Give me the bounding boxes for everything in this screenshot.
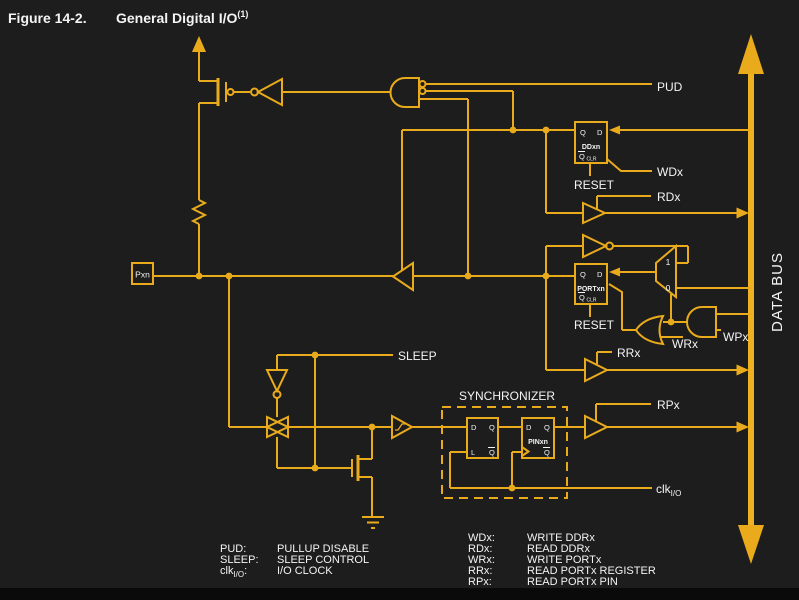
pmos-gate-bubble: [228, 89, 234, 95]
portxn-qbar-label: Q: [579, 293, 585, 302]
reset-ddr-label: RESET: [574, 178, 615, 192]
reset-port-label: RESET: [574, 318, 615, 332]
latch-q-label: Q: [489, 423, 495, 432]
clamp-gate-right-triangle: [267, 417, 288, 437]
portxn-name: PORTxn: [577, 286, 605, 293]
clk-base: clk: [656, 482, 672, 496]
rdx-bus-arrow-icon: [737, 208, 750, 219]
ground-symbol: [362, 517, 384, 528]
clamp-gate-left-triangle: [267, 417, 288, 437]
wires-portxn: [153, 246, 751, 370]
figure-number: Figure 14-2.: [8, 10, 87, 26]
wires-input-path: [229, 276, 467, 528]
data-bus: DATA BUS: [738, 34, 786, 564]
wdx-label: WDx: [657, 165, 683, 179]
wires-ddxn: [402, 130, 751, 270]
data-bus-label: DATA BUS: [769, 252, 786, 332]
latch-d-label: D: [471, 423, 477, 432]
pullup-and-gate: [391, 78, 420, 107]
wrx-label: WRx: [672, 337, 698, 351]
synchronizer-label: SYNCHRONIZER: [459, 389, 555, 403]
ddxn-qbar-label: Q: [579, 152, 585, 161]
mux-input-1-label: 1: [666, 257, 671, 267]
latch-qbar-label: Q: [489, 448, 495, 457]
figure-canvas: Figure 14-2.General Digital I/O(1) DATA …: [0, 0, 799, 600]
rpx-label: RPx: [657, 398, 680, 412]
wpx-and-gate: [687, 307, 716, 337]
pinxn-qbar-label: Q: [544, 448, 550, 457]
sleep-inverter: [267, 370, 287, 391]
clk-io-label: clkI/O: [656, 482, 681, 498]
schmitt-buffer: [392, 416, 412, 438]
rpx-bus-arrow-icon: [737, 422, 750, 433]
wires-synchronizer: [450, 404, 737, 488]
sleep-label: SLEEP: [398, 349, 437, 363]
ddxn-section: Q D DDxn Q CLR RESET WDx RDx: [402, 122, 751, 270]
wpx-label: WPx: [723, 330, 748, 344]
synchronizer-section: SYNCHRONIZER D Q L Q D Q PINxn Q RPx clk…: [442, 389, 749, 498]
portxn-d-arrow-icon: [609, 268, 620, 277]
portxn-section: 1 0 Q D PORTxn Q CLR RESET WRx WPx RRx P…: [132, 235, 751, 381]
legend-clk-colon: :: [244, 565, 247, 577]
legend-clk-base: clk: [220, 565, 234, 577]
legend-def-clk: I/O CLOCK: [277, 565, 333, 577]
portxn-clr-label: CLR: [587, 298, 597, 304]
and-input-bubble-ddxn: [420, 88, 426, 94]
rrx-label: RRx: [617, 346, 640, 360]
rdx-buffer: [583, 203, 605, 223]
write-or-gate: [636, 316, 663, 344]
wires-pullup: [193, 48, 250, 276]
pullup-section: PUD: [192, 36, 683, 276]
pullup-inverter: [258, 79, 282, 105]
bus-arrow-down-icon: [738, 525, 764, 564]
legend-term-clk: clkI/O:: [220, 565, 247, 579]
rrx-bus-arrow-icon: [737, 365, 750, 376]
mux-input-0-label: 0: [666, 283, 671, 293]
toggle-inverter: [583, 235, 606, 257]
and-input-bubble-pud: [420, 81, 426, 87]
rdx-label: RDx: [657, 190, 680, 204]
legend-clk-sub: I/O: [233, 570, 244, 579]
figure-title: Figure 14-2.General Digital I/O(1): [8, 9, 248, 26]
ddxn-clr-label: CLR: [587, 157, 597, 163]
latch-l-label: L: [471, 448, 475, 457]
portxn-q-label: Q: [580, 270, 586, 279]
figure-caption: General Digital I/O: [116, 10, 237, 26]
ddxn-name: DDxn: [582, 144, 600, 151]
digital-io-diagram: Figure 14-2.General Digital I/O(1) DATA …: [0, 0, 799, 600]
pinxn-q-label: Q: [544, 423, 550, 432]
pud-label: PUD: [657, 80, 683, 94]
schmitt-hysteresis-icon: [395, 424, 405, 430]
ddxn-d-label: D: [597, 128, 603, 137]
footnote-reference: (1): [237, 9, 248, 19]
pxn-label: Pxn: [135, 270, 150, 280]
pinxn-name: PINxn: [528, 439, 548, 446]
bottom-bar: [0, 588, 799, 600]
ddxn-q-label: Q: [580, 128, 586, 137]
bus-arrow-up-icon: [738, 34, 764, 74]
wires-and-inputs: [419, 84, 652, 276]
pullup-resistor: [193, 200, 205, 276]
input-path-section: SLEEP: [229, 276, 467, 528]
ddxn-d-arrow-icon: [609, 126, 620, 135]
clk-subscript: I/O: [671, 489, 682, 498]
pinxn-d-label: D: [526, 423, 532, 432]
portxn-d-label: D: [597, 270, 603, 279]
